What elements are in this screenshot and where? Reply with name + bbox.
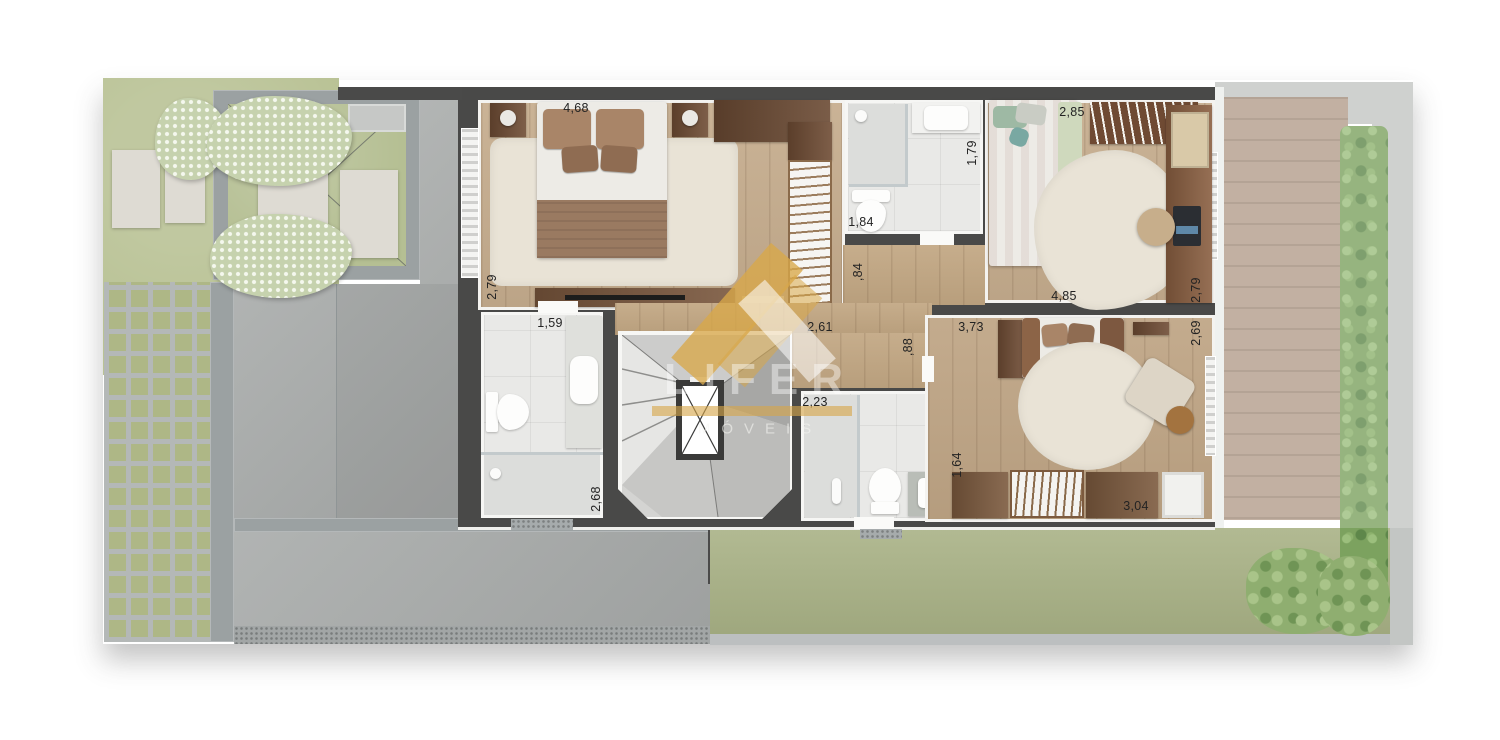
- shower-head-icon: [490, 468, 501, 479]
- brand-divider: [652, 406, 852, 416]
- sink: [924, 106, 968, 130]
- toilet-tank: [871, 502, 899, 514]
- top-wall-extension: [338, 87, 462, 100]
- pillow: [596, 109, 644, 149]
- sink: [570, 356, 598, 404]
- bathroom3-door: [538, 301, 578, 313]
- dim-label: 4,68: [563, 101, 589, 115]
- pillow-gray: [1015, 102, 1047, 126]
- grid-pavers: [104, 282, 210, 642]
- dim-label: 1,79: [965, 140, 979, 166]
- master-window: [461, 128, 479, 278]
- tv-screen: [565, 295, 685, 300]
- door-mat: [511, 519, 573, 530]
- fern-patch: [1318, 556, 1390, 636]
- dim-label: 1,84: [848, 215, 874, 229]
- shower-glass: [905, 104, 908, 186]
- bed3-shelf: [998, 320, 1024, 378]
- dim-label: 3,04: [1123, 499, 1149, 513]
- stepping-stone: [112, 150, 160, 228]
- brand-name: LIFER: [664, 355, 856, 405]
- hand-shower-icon: [832, 478, 841, 504]
- dresser: [952, 472, 1008, 518]
- pillow: [600, 145, 638, 173]
- courtyard-platform: [348, 104, 406, 132]
- floorplan-canvas: LIFER MÓVEIS 4,68 2,79 2,61 1,84 1,79 ,8…: [0, 0, 1500, 740]
- garden-divider-wall: [210, 282, 234, 642]
- dim-label: 2,79: [485, 274, 499, 300]
- dim-label: 2,85: [1059, 105, 1085, 119]
- cabinet: [1162, 472, 1204, 518]
- dim-label: 4,85: [1051, 289, 1077, 303]
- shower-glass: [857, 395, 860, 517]
- path-border-bottom: [710, 634, 1390, 645]
- pillow: [1041, 323, 1069, 348]
- desk-cushion: [1171, 112, 1209, 168]
- bedroom3-door: [922, 356, 934, 382]
- pillow: [543, 109, 591, 149]
- dim-label: 2,79: [1189, 277, 1203, 303]
- brand-subtitle: MÓVEIS: [698, 421, 822, 438]
- sunlight-wash: [1215, 82, 1413, 528]
- slab-edge-band: [234, 626, 710, 644]
- laptop-screen: [1176, 226, 1198, 234]
- bed-foot-blanket: [537, 200, 667, 258]
- dim-label: 3,73: [958, 320, 984, 334]
- slab-seam: [336, 284, 462, 520]
- sideboard: [1133, 322, 1169, 335]
- wardrobe: [1010, 470, 1084, 518]
- bedroom3-window: [1205, 356, 1216, 456]
- lamp: [682, 110, 698, 126]
- dim-label: 1,59: [537, 316, 563, 330]
- door-mat: [860, 529, 902, 539]
- dim-label: ,84: [851, 263, 865, 281]
- bathroom2-door: [854, 517, 894, 529]
- shower-area: [484, 455, 600, 515]
- shower-head-icon: [855, 110, 867, 122]
- lamp: [500, 110, 516, 126]
- closet-shelf: [788, 122, 832, 160]
- concrete-slab-lower: [234, 532, 710, 626]
- dim-label: ,88: [901, 338, 915, 356]
- bathroom1-door: [920, 232, 954, 245]
- dim-label: 2,68: [589, 486, 603, 512]
- toilet-bowl: [869, 468, 901, 504]
- dim-label: 1,64: [950, 452, 964, 478]
- dim-label: 2,69: [1189, 320, 1203, 346]
- pillow: [561, 145, 599, 173]
- shower-glass: [849, 184, 908, 187]
- side-table: [1166, 406, 1194, 434]
- desk-chair: [1137, 208, 1175, 246]
